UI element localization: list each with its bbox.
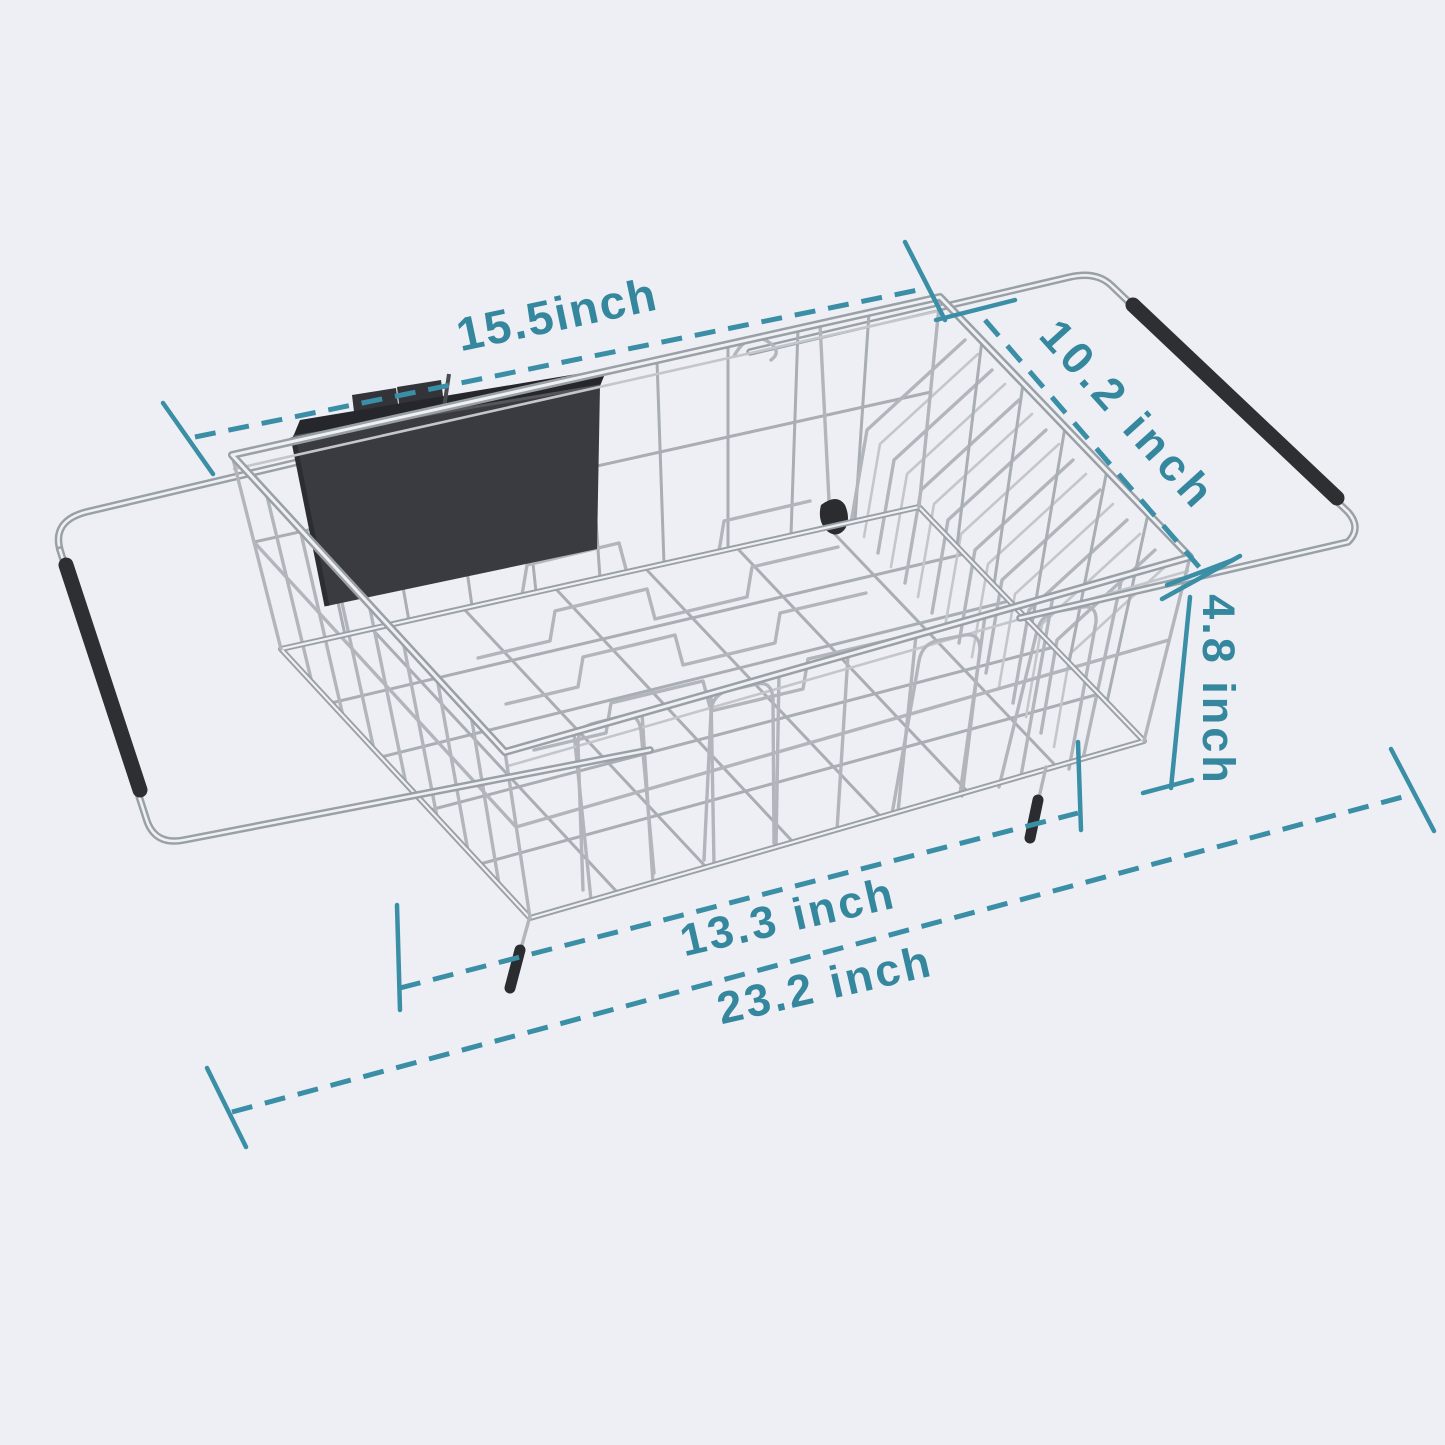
left-handle-grip [66, 565, 140, 790]
right-foot-tip [1030, 800, 1038, 838]
cup-holder-arches [578, 607, 1096, 890]
dimension-overall-length [207, 749, 1434, 1147]
product-dimension-diagram: 15.5inch 10.2 inch 4.8 inch 13.3 inch 23… [0, 0, 1445, 1445]
dimension-label-basket-height: 4.8 inch [1192, 594, 1244, 786]
